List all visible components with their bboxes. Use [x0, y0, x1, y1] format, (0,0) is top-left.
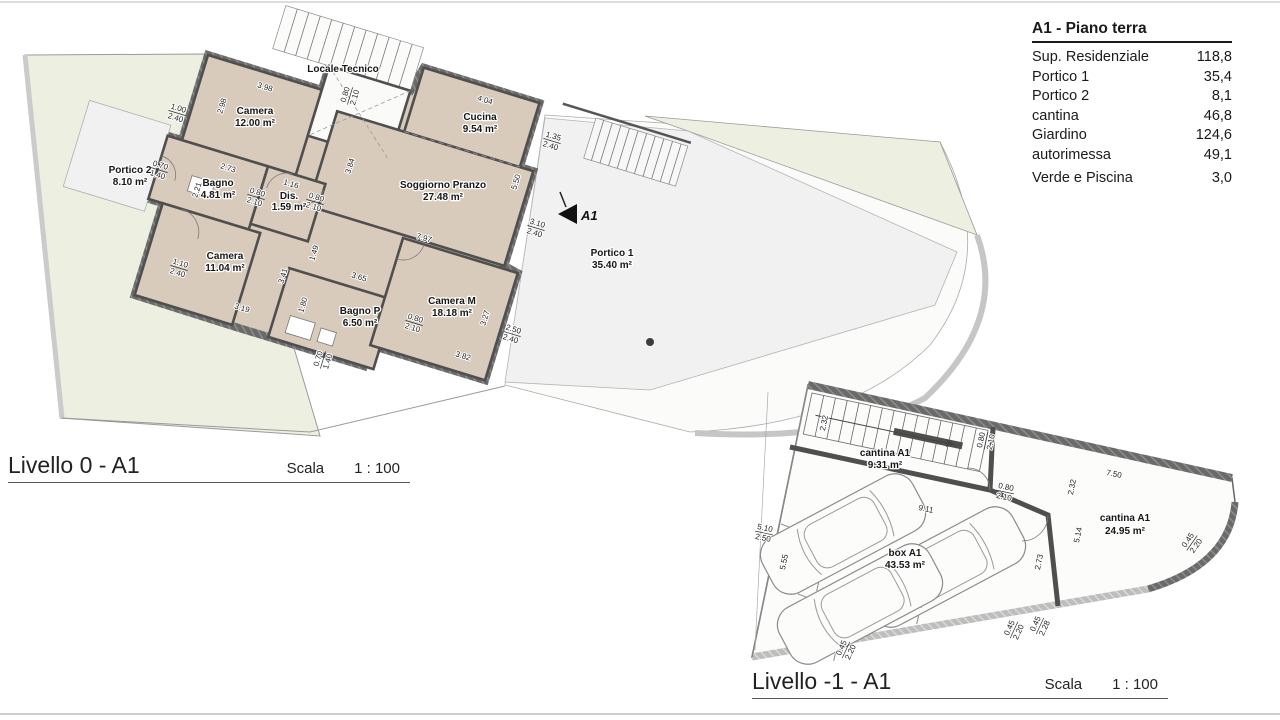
svg-text:cantina A1: cantina A1: [860, 448, 911, 459]
svg-text:Portico 1: Portico 1: [591, 248, 634, 259]
svg-text:1.59 m²: 1.59 m²: [272, 202, 307, 213]
svg-text:4.81 m²: 4.81 m²: [201, 190, 236, 201]
plan1-scale-label: Scala: [1045, 676, 1083, 693]
legend-label: Verde e Piscina: [1032, 169, 1133, 189]
svg-text:35.40 m²: 35.40 m²: [592, 260, 633, 271]
plan0-scale-value: 1 : 100: [354, 460, 400, 477]
legend-table: A1 - Piano terra Sup. Residenziale118,8 …: [1032, 20, 1232, 189]
legend-label: Portico 1: [1032, 68, 1089, 88]
svg-text:box A1: box A1: [889, 548, 922, 559]
legend-row: Verde e Piscina3,0: [1032, 169, 1232, 189]
legend-row: Giardino124,6: [1032, 126, 1232, 146]
plan0-title: Livello 0 - A1: [8, 452, 140, 479]
page-edge-bottom: [0, 713, 1280, 715]
legend-row: autorimessa49,1: [1032, 146, 1232, 166]
svg-text:43.53 m²: 43.53 m²: [885, 560, 926, 571]
svg-text:Camera: Camera: [237, 106, 274, 117]
legend-label: cantina: [1032, 107, 1079, 127]
svg-text:Bagno P: Bagno P: [340, 306, 381, 317]
legend-value: 118,8: [1197, 48, 1232, 68]
legend-value: 49,1: [1204, 146, 1232, 166]
svg-text:A1: A1: [580, 208, 598, 223]
svg-text:Bagno: Bagno: [202, 178, 233, 189]
svg-text:Dis.: Dis.: [280, 191, 299, 202]
plan0-title-block: Livello 0 - A1 Scala 1 : 100: [8, 452, 410, 483]
plan1-title-block: Livello -1 - A1 Scala 1 : 100: [752, 668, 1168, 699]
legend-value: 124,6: [1196, 126, 1232, 146]
svg-text:Portico 2: Portico 2: [109, 165, 152, 176]
plan0-scale-label: Scala: [287, 460, 325, 477]
svg-text:2.50: 2.50: [754, 532, 772, 544]
svg-text:9.54 m²: 9.54 m²: [463, 124, 498, 135]
column-dot: [646, 338, 654, 346]
legend-value: 35,4: [1204, 68, 1232, 88]
svg-text:Soggiorno Pranzo: Soggiorno Pranzo: [400, 180, 486, 191]
legend-label: autorimessa: [1032, 146, 1111, 166]
svg-text:11.04 m²: 11.04 m²: [205, 263, 245, 274]
svg-text:Camera: Camera: [207, 251, 244, 262]
svg-text:Locale Tecnico: Locale Tecnico: [307, 64, 379, 75]
svg-text:24.95 m²: 24.95 m²: [1105, 526, 1146, 537]
legend-row: Portico 28,1: [1032, 87, 1232, 107]
legend-value: 8,1: [1212, 87, 1232, 107]
svg-text:12.00 m²: 12.00 m²: [235, 118, 276, 129]
svg-text:cantina A1: cantina A1: [1100, 513, 1151, 524]
dimension-label: 0.452.28: [1028, 614, 1053, 638]
page-edge-top: [0, 1, 1280, 3]
legend-label: Giardino: [1032, 126, 1087, 146]
svg-text:27.48 m²: 27.48 m²: [423, 192, 464, 203]
legend-value: 3,0: [1212, 169, 1232, 189]
svg-text:6.50 m²: 6.50 m²: [343, 318, 378, 329]
legend-label: Sup. Residenziale: [1032, 48, 1149, 68]
legend-label: Portico 2: [1032, 87, 1089, 107]
svg-text:Camera M: Camera M: [428, 296, 476, 307]
svg-text:Cucina: Cucina: [463, 112, 497, 123]
plan1-scale-value: 1 : 100: [1112, 676, 1158, 693]
legend-value: 46,8: [1204, 107, 1232, 127]
legend-title: A1 - Piano terra: [1032, 20, 1232, 43]
legend-row: Portico 135,4: [1032, 68, 1232, 88]
svg-text:18.18 m²: 18.18 m²: [432, 308, 473, 319]
legend-row: Sup. Residenziale118,8: [1032, 48, 1232, 68]
svg-text:8.10 m²: 8.10 m²: [113, 177, 148, 188]
dimension-label: 0.452.20: [1002, 618, 1027, 642]
legend-row: cantina46,8: [1032, 107, 1232, 127]
plan1-title: Livello -1 - A1: [752, 668, 891, 695]
floor-plan-sheet: A1: [0, 0, 1280, 720]
svg-text:9.31 m²: 9.31 m²: [868, 460, 903, 471]
